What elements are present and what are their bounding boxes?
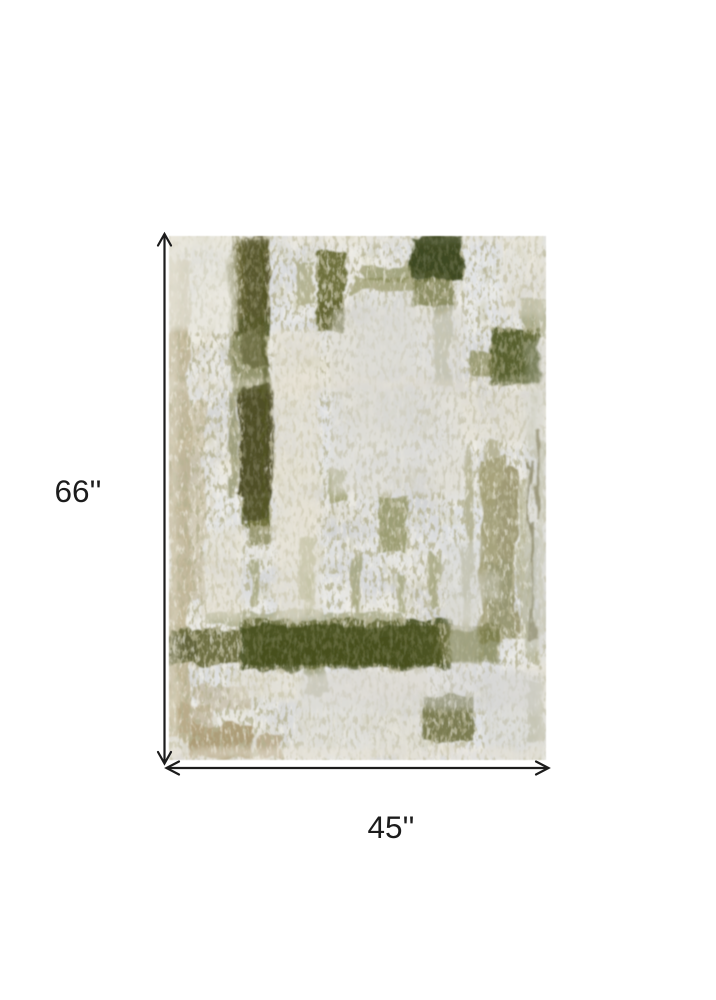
svg-text:45'': 45'' [367, 809, 414, 845]
svg-text:66'': 66'' [54, 473, 101, 509]
